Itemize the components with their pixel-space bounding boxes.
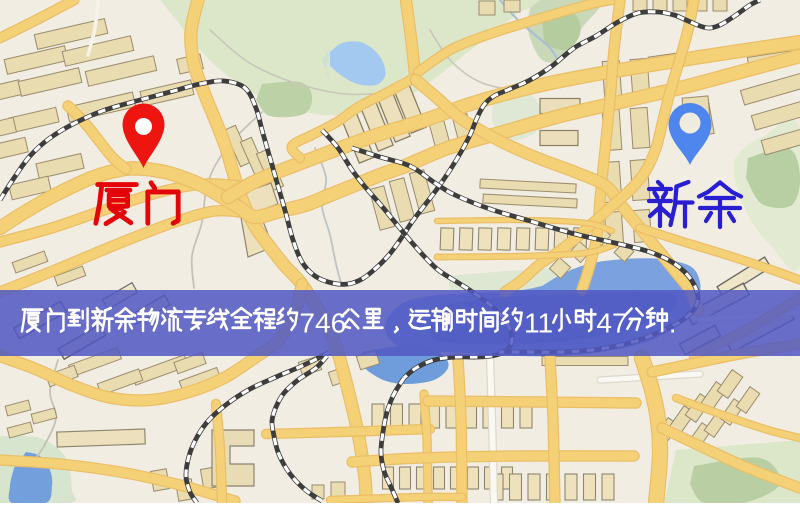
svg-text:.: . — [669, 308, 677, 339]
svg-text:746: 746 — [299, 308, 346, 339]
svg-text:47: 47 — [596, 308, 627, 339]
svg-text:11: 11 — [524, 308, 553, 339]
